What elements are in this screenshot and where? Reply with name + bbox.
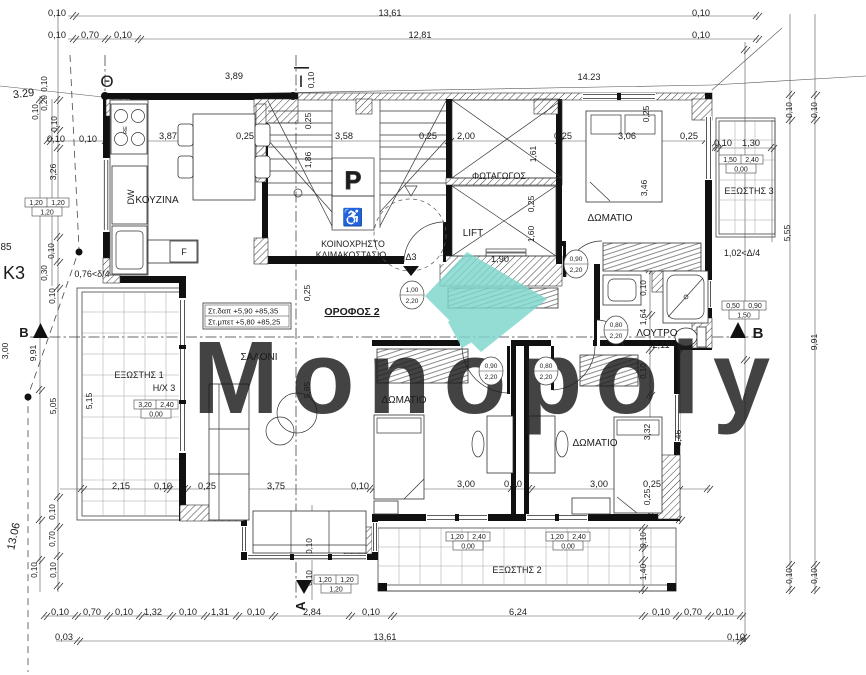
dim-label: 0,10 — [115, 607, 133, 617]
room-label: ΦΩΤΑΓΩΓΟΣ — [472, 171, 526, 181]
dim-label: 0,10 — [305, 570, 314, 586]
dim-tick — [639, 556, 648, 564]
dim-label: 3.29 — [12, 87, 35, 102]
room-label: ΕΞΩΣΤΗΣ 2 — [492, 565, 541, 575]
note-label: Η/Χ 3 — [153, 383, 176, 393]
dim-label: 0,10 — [48, 288, 57, 304]
dim-tick — [54, 144, 63, 152]
tag-width: 3,20 — [138, 402, 152, 409]
tag-sill: 1,20 — [40, 210, 54, 217]
dim-label: 0,10 — [48, 504, 57, 520]
dim-tick — [54, 233, 63, 241]
dim-tick — [811, 91, 820, 99]
room-label: ΕΞΩΣΤΗΣ 3 — [724, 186, 773, 196]
dim-label: 0,25 — [526, 195, 536, 212]
door-height: 2,20 — [406, 298, 419, 305]
tag-width: 1,50 — [723, 157, 737, 164]
window-tag: 1,201,201,20 — [25, 198, 69, 217]
dim-label: 14.23 — [578, 72, 601, 82]
door-size-tag: 0,902,20 — [479, 357, 503, 385]
dim-label: 9,91 — [809, 333, 819, 350]
dim-label: 0,03 — [55, 632, 73, 642]
tag-sill: 0,00 — [461, 544, 475, 551]
dim-tick — [741, 46, 750, 54]
dim-tick — [786, 561, 795, 569]
dim-label: 0,10 — [785, 102, 794, 118]
dim-label: 13,61 — [379, 8, 402, 18]
tag-sill: 1,20 — [329, 587, 343, 594]
tag-width: 0,50 — [726, 303, 740, 310]
tag-width: 1,20 — [29, 200, 43, 207]
dim-label: 0,10 — [727, 632, 745, 642]
room-label: LIFT — [463, 228, 484, 239]
dim-label: 1,60 — [526, 225, 536, 242]
dim-label: 0,10 — [51, 607, 69, 617]
door-size-tag: 1,002,20 — [400, 281, 424, 309]
axis-theta-label: Θ — [100, 72, 113, 91]
floor-plan-drawing: Monopoly 0,1013,610,100,100,700,1012,810… — [0, 0, 866, 675]
dim-label: 0,10 — [716, 607, 734, 617]
section-label: Β — [19, 325, 28, 340]
tag-height: 2,40 — [572, 534, 586, 541]
note-label: 1,02<Δ/4 — [724, 248, 760, 258]
tag-height: 2,40 — [472, 534, 486, 541]
dim-label: 3,06 — [618, 131, 636, 141]
dim-label: 1,90 — [491, 254, 509, 264]
dim-label: 0,10 — [30, 562, 39, 578]
window-tag: 1,202,400,00 — [546, 532, 590, 551]
dim-label: 0,10 — [47, 243, 56, 259]
dim-label: 0,10 — [652, 607, 670, 617]
point-label: 85 — [0, 242, 12, 253]
dim-label: 13.06 — [5, 522, 22, 551]
dim-label: 0,10 — [79, 134, 97, 144]
axis-point — [289, 92, 297, 100]
level-line-1: Στ.δαπ +5,90 +85,35 — [208, 307, 278, 316]
dim-label: 1,31 — [211, 607, 229, 617]
dim-label: 0,25 — [302, 284, 312, 301]
dim-label: 3,26 — [48, 163, 58, 180]
dim-label: 0,25 — [198, 481, 216, 491]
dim-label: 0,10 — [31, 104, 40, 120]
dim-label: 3,00 — [0, 342, 10, 359]
dim-label: 0,25 — [680, 131, 698, 141]
tag-height: 1,20 — [51, 200, 65, 207]
dim-label: 3,87 — [159, 131, 177, 141]
point-label: Κ3 — [3, 263, 25, 283]
dim-label: 3,75 — [267, 481, 285, 491]
dim-tick — [54, 523, 63, 531]
dim-label: 1,86 — [303, 151, 313, 168]
dim-label: 1,61 — [528, 145, 538, 162]
dim-label: 0,25 — [303, 112, 313, 129]
boundary-point — [25, 394, 32, 401]
dim-label: 0,10 — [785, 568, 794, 584]
dim-label: 2,11 — [652, 340, 669, 350]
dim-tick — [54, 552, 63, 560]
window-tag: 1,201,201,20 — [314, 575, 358, 594]
door-height: 2,20 — [570, 267, 583, 274]
dim-label: 2,84 — [303, 607, 321, 617]
dim-label: 0,10 — [639, 532, 648, 548]
tag-height: 2,40 — [745, 157, 759, 164]
dim-label: 0,10 — [810, 102, 819, 118]
dining-table — [178, 114, 270, 200]
dim-label: 12,81 — [409, 30, 432, 40]
door-label: Δ3 — [405, 252, 416, 262]
dim-label: 0,10 — [305, 538, 314, 554]
dim-label: 0,10 — [714, 138, 732, 148]
door-width: 0,80 — [610, 322, 623, 329]
dim-tick — [36, 386, 45, 394]
dim-label: 0,25 — [236, 131, 254, 141]
room-label: ΔΩΜΑΤΙΟ — [587, 213, 632, 224]
window-tag: 1,202,400,00 — [446, 532, 490, 551]
dim-tick — [54, 493, 63, 501]
room-label: ΕΞΩΣΤΗΣ 1 — [114, 370, 163, 380]
floor-plan-canvas: Monopoly 0,1013,610,100,100,700,1012,810… — [0, 0, 866, 675]
dim-label: 0,10 — [47, 134, 65, 144]
dim-tick — [811, 586, 820, 594]
dim-label: 0,70 — [81, 30, 99, 40]
dim-label: 3,00 — [457, 479, 475, 489]
kitchen-sink — [112, 226, 147, 274]
dim-label: 0,10 — [154, 481, 172, 491]
tag-sill: 1,50 — [737, 313, 751, 320]
dim-label: 0,70 — [684, 607, 702, 617]
room-label: ΚΟΙΝΟΧΡΗΣΤΟ — [321, 239, 385, 249]
level-line-2: Στ.μπετ +5,80 +85,25 — [208, 318, 280, 327]
dim-label: 0,10 — [810, 568, 819, 584]
dim-label: 0,10 — [639, 280, 648, 296]
dim-label: 1,64 — [638, 308, 648, 325]
dim-label: 0,10 — [114, 30, 132, 40]
room-label: ΚΛΙΜΑΚΟΣΤΑΣΙΟ — [316, 250, 387, 260]
dim-label: 0,25 — [642, 488, 652, 505]
door-width: 1,00 — [406, 287, 419, 294]
bed — [586, 111, 662, 202]
dim-label: 6,24 — [509, 607, 527, 617]
dim-label: 0,70 — [83, 607, 101, 617]
dim-label: 3,46 — [673, 429, 683, 446]
tag-height: 0,90 — [748, 303, 762, 310]
tag-height: 2,40 — [160, 402, 174, 409]
dim-label: 0,10 — [306, 71, 316, 88]
dim-label: 0,10 — [49, 562, 58, 578]
balcony-3-tiles — [716, 118, 775, 237]
dim-tick — [786, 586, 795, 594]
parking-sign: P — [345, 167, 362, 195]
door-height: 2,20 — [540, 374, 553, 381]
dim-label: 9,91 — [28, 344, 38, 361]
appliance-label: RE — [123, 126, 129, 134]
dim-label: 0,10 — [179, 607, 197, 617]
dim-label: 0,10 — [692, 8, 710, 18]
dim-tick — [639, 586, 648, 594]
room-label: ΔΩΜΑΤΙΟ — [381, 395, 426, 406]
tag-width: 1,20 — [550, 534, 564, 541]
kitchen-furniture — [110, 100, 270, 275]
dim-tick — [54, 96, 63, 104]
dim-label: 3,58 — [335, 131, 353, 141]
door-height: 2,20 — [610, 333, 623, 340]
shower — [663, 271, 708, 323]
room-label: ΚΟΥΖΙΝΑ — [135, 195, 179, 206]
dim-label: 0,30 — [40, 265, 49, 281]
door-width: 0,90 — [570, 256, 583, 263]
lift-shaft — [452, 186, 556, 256]
dim-label: 0,25 — [643, 479, 661, 489]
wardrobe — [603, 243, 701, 271]
tag-width: 1,20 — [450, 534, 464, 541]
tag-height: 1,20 — [340, 577, 354, 584]
dim-tick — [811, 561, 820, 569]
window-tag: 0,500,901,50 — [722, 301, 766, 320]
dim-label: 0,10 — [48, 30, 66, 40]
axis-iota-label: Ι — [299, 72, 304, 91]
dim-label: 0,10 — [48, 8, 66, 18]
boundary-point — [76, 249, 83, 256]
stove — [111, 104, 147, 154]
dim-label: 0,20 — [40, 95, 49, 111]
washbasin — [603, 275, 641, 305]
dim-label: 0,10 — [40, 76, 49, 92]
levels-box: Στ.δαπ +5,90 +85,35Στ.μπετ +5,80 +85,25 — [203, 303, 291, 329]
room-label: ΔΩΜΑΤΙΟ — [572, 438, 617, 449]
tag-sill: 0,00 — [734, 167, 748, 174]
door-size-tag: 0,802,20 — [604, 316, 628, 344]
dim-label: 0,70 — [48, 531, 57, 547]
dim-label: 1,30 — [742, 138, 760, 148]
dim-label: 0,25 — [554, 131, 572, 141]
dim-tick — [786, 91, 795, 99]
dim-label: 5,15 — [84, 392, 94, 409]
dim-tick — [54, 582, 63, 590]
dim-label: 3,00 — [590, 479, 608, 489]
dim-label: 3,32 — [642, 423, 652, 440]
dim-label: 0,25 — [641, 105, 651, 122]
appliance-label: DW — [126, 189, 136, 204]
note-label: 0,76<δ/4 — [74, 269, 109, 279]
dim-label: 0,10 — [50, 116, 59, 132]
floor-label: ΟΡΟΦΟΣ 2 — [324, 306, 379, 318]
window-tag: 1,502,400,00 — [719, 155, 763, 174]
dim-label: 5,05 — [48, 397, 58, 414]
dim-label: 1,40 — [638, 563, 648, 580]
axis-point — [101, 92, 109, 100]
tag-sill: 0,00 — [561, 544, 575, 551]
room-label: ΛΟΥΤΡΟ — [636, 328, 677, 339]
dim-label: 0,10 — [362, 607, 380, 617]
dim-label: 0,25 — [419, 131, 437, 141]
dim-label: 0,10 — [692, 30, 710, 40]
dim-tick — [36, 516, 45, 524]
appliance-label: F — [181, 247, 187, 257]
dim-label: 5,55 — [782, 224, 792, 241]
room-label: ΣΑΛΟΝΙ — [240, 352, 277, 363]
dim-label: 0,10 — [247, 607, 265, 617]
dim-label: 5,85 — [302, 381, 312, 398]
dim-label: 3,46 — [639, 179, 649, 196]
balcony-2-tiles — [378, 528, 676, 591]
door-size-tag: 0,802,20 — [534, 357, 558, 385]
tag-sill: 0,00 — [149, 412, 163, 419]
wheelchair-icon: ♿ — [342, 207, 363, 227]
section-label: Β — [753, 325, 764, 342]
dim-label: 0,10 — [639, 363, 648, 379]
dim-label: 1,32 — [144, 607, 162, 617]
dim-label: 0,10 — [351, 481, 369, 491]
door-size-tag: 0,902,20 — [564, 250, 588, 278]
door-width: 0,90 — [485, 363, 498, 370]
door-width: 0,80 — [540, 363, 553, 370]
dim-label: 2,00 — [457, 131, 475, 141]
dim-label: 2,15 — [112, 481, 130, 491]
window-tag: 3,202,400,00 — [134, 400, 178, 419]
tag-width: 1,20 — [318, 577, 332, 584]
section-b-arrow-left — [33, 323, 48, 338]
dim-label: 0,10 — [504, 479, 522, 489]
dim-label: 13,61 — [374, 632, 397, 642]
door-height: 2,20 — [485, 374, 498, 381]
dim-label: 3,89 — [225, 71, 243, 81]
